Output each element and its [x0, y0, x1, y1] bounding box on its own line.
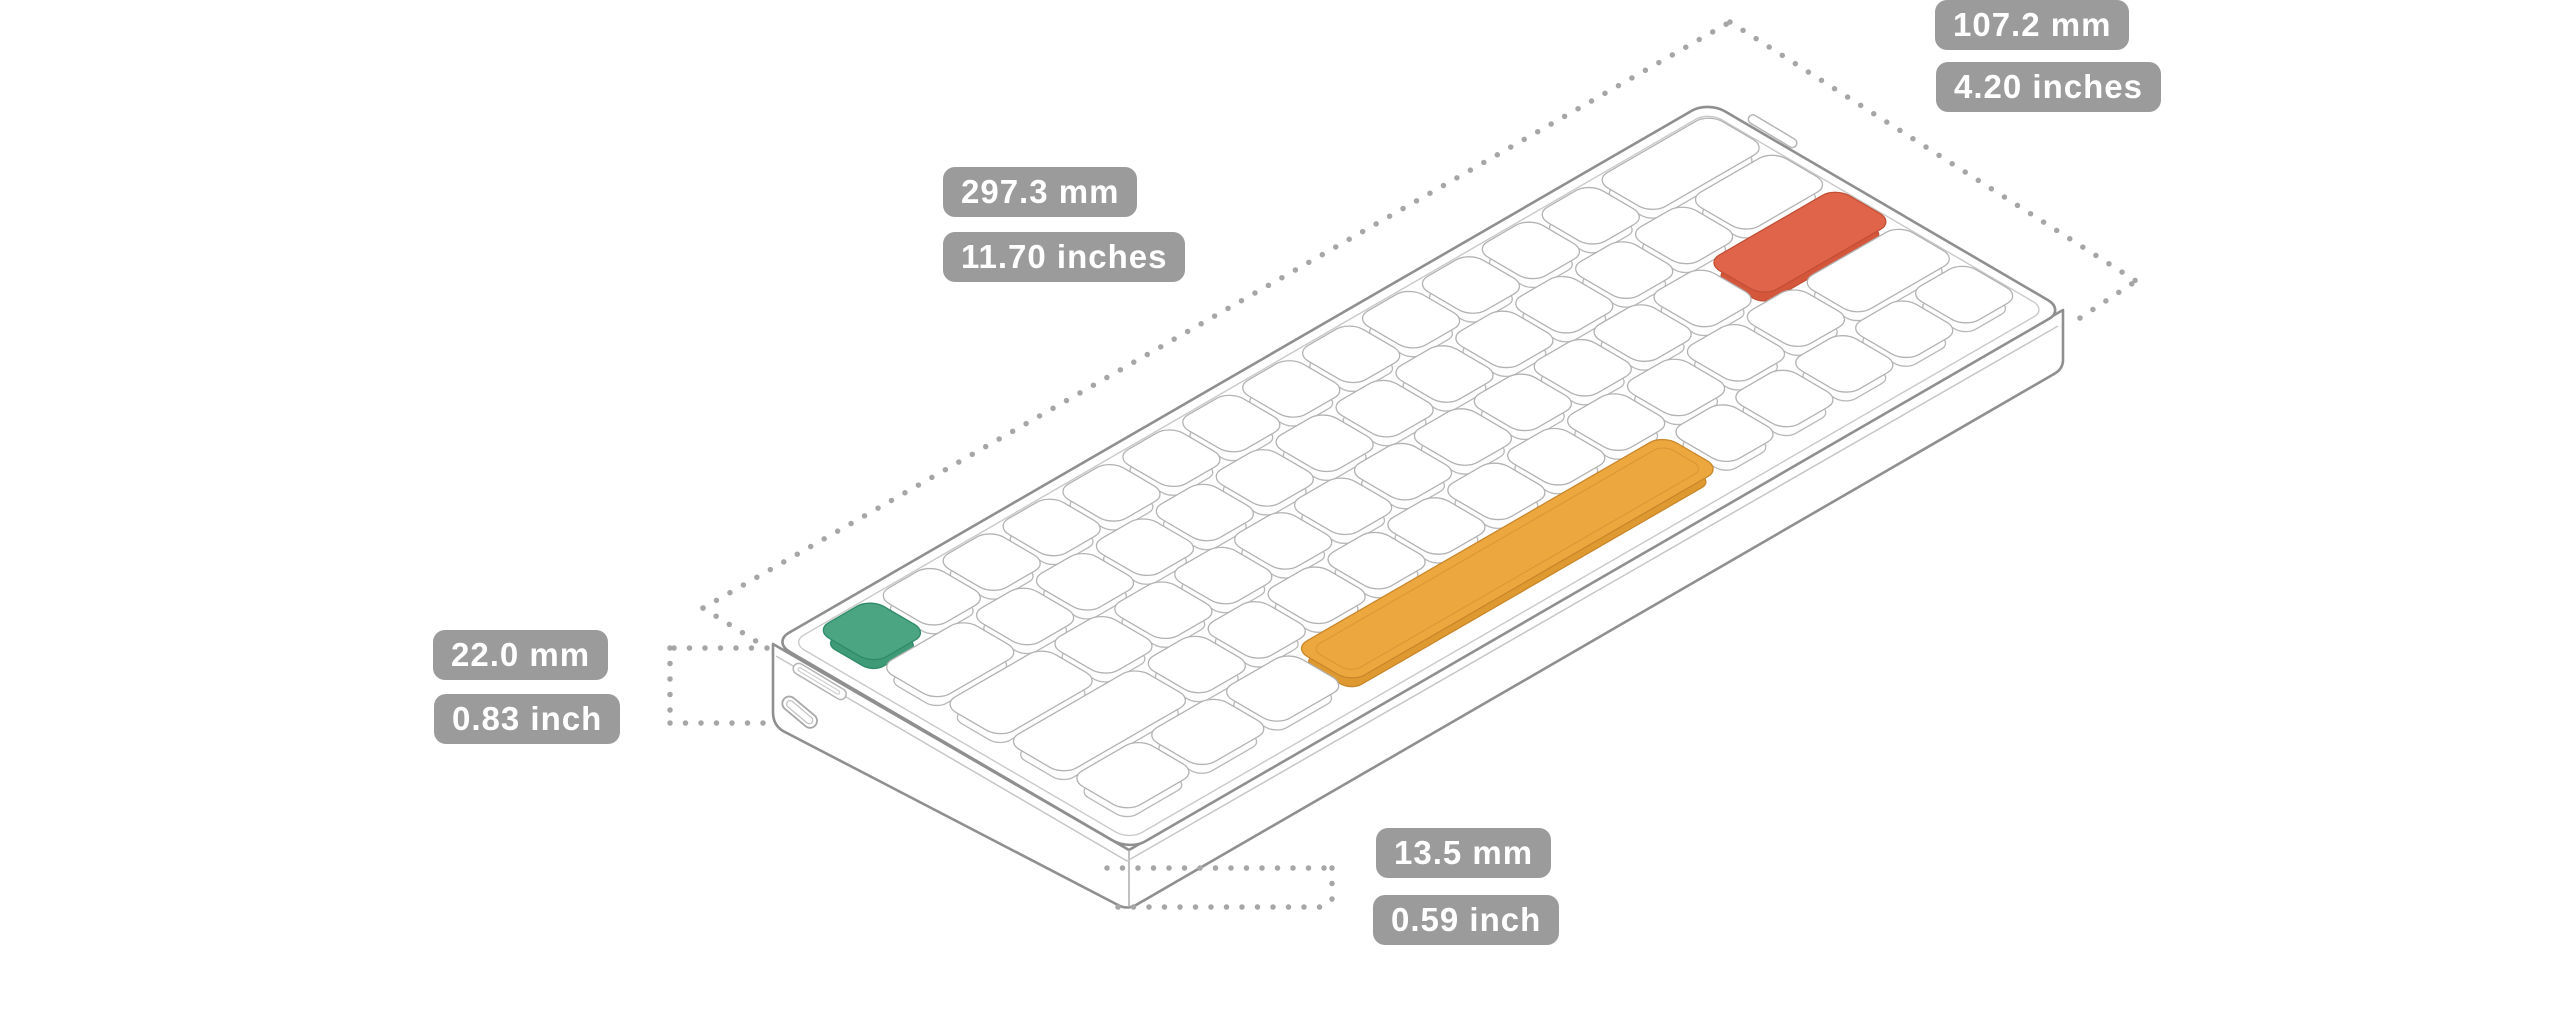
diagram-stage: 107.2 mm 4.20 inches 297.3 mm 11.70 inch… [0, 0, 2560, 1032]
label-depth-inches: 4.20 inches [1936, 62, 2161, 112]
label-length-mm: 297.3 mm [943, 167, 1137, 217]
label-rear-height-mm: 22.0 mm [433, 630, 608, 680]
label-rear-height-inch: 0.83 inch [434, 694, 620, 744]
label-depth-mm: 107.2 mm [1935, 0, 2129, 50]
label-front-height-mm: 13.5 mm [1376, 828, 1551, 878]
label-length-inches: 11.70 inches [943, 232, 1185, 282]
label-front-height-inch: 0.59 inch [1373, 895, 1559, 945]
keyboard-illustration [0, 0, 2560, 1032]
